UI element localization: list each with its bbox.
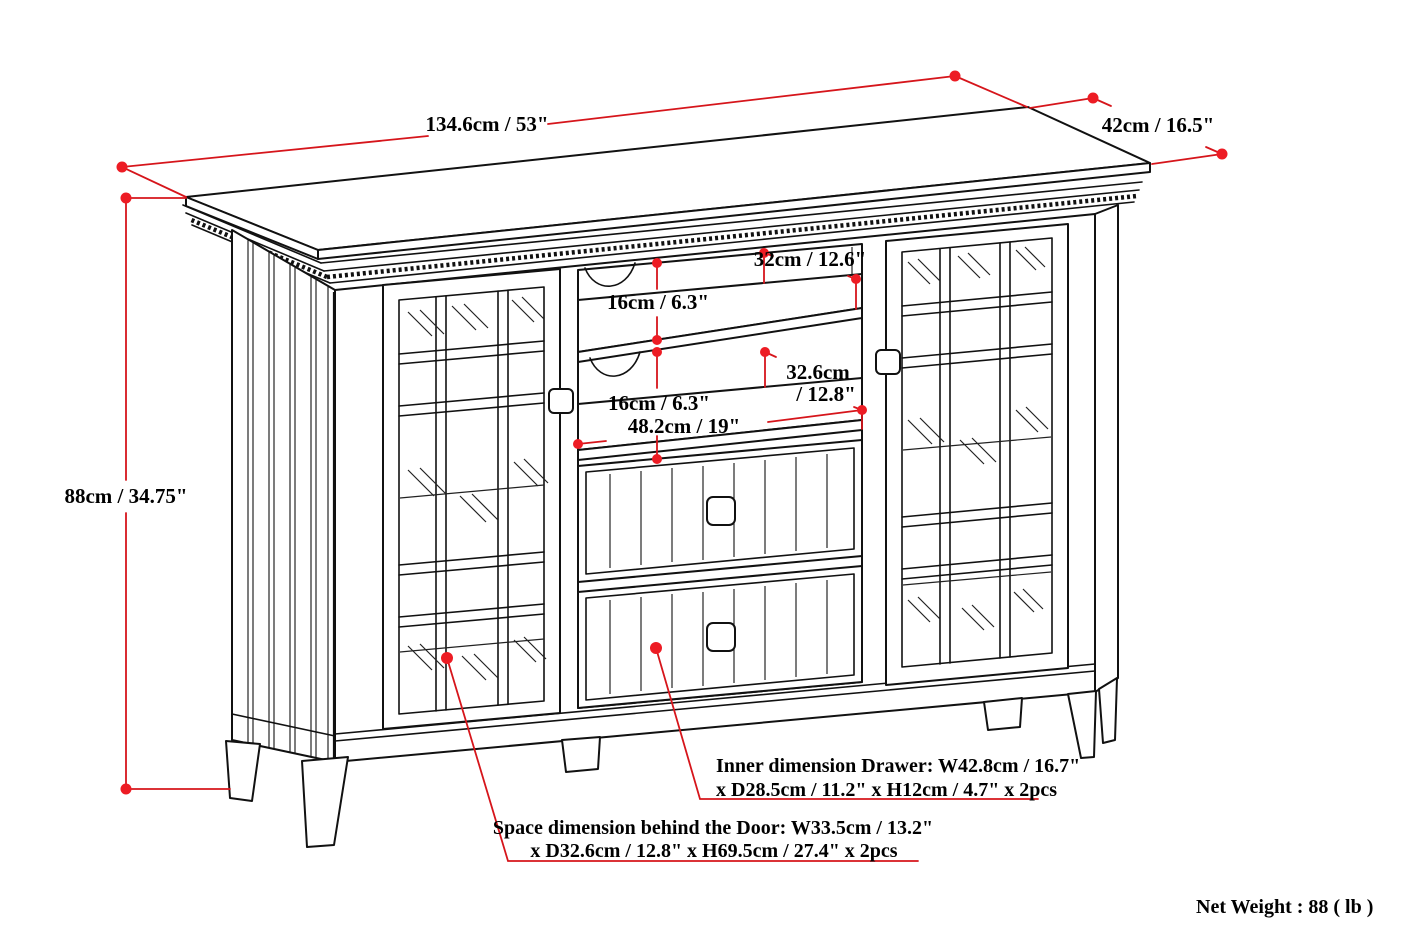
back-right-leg — [1099, 678, 1117, 743]
center-right-foot — [984, 698, 1022, 730]
drawer-upper[interactable] — [578, 440, 862, 582]
back-left-leg — [226, 741, 260, 801]
lower-drawer-knob[interactable] — [707, 623, 735, 651]
right-door — [876, 224, 1068, 685]
front-right-leg — [1068, 691, 1096, 758]
net-weight-label: Net Weight : 88 ( lb ) — [1196, 896, 1373, 918]
dim-lower-shelf-depth-in-label: / 12.8" — [795, 382, 856, 406]
cabinet-drawing: 134.6cm / 53" 42cm / 16.5" 88cm / 34.75"… — [0, 0, 1402, 951]
dim-width-label: 134.6cm / 53" — [425, 112, 548, 136]
front-left-leg — [302, 757, 348, 847]
left-side-panel — [232, 230, 335, 762]
center-left-foot — [562, 737, 600, 772]
furniture-dimension-diagram: 134.6cm / 53" 42cm / 16.5" 88cm / 34.75"… — [0, 0, 1402, 951]
dim-shelf-height-upper-label: 16cm / 6.3" — [607, 290, 709, 314]
dim-height-label: 88cm / 34.75" — [64, 484, 187, 508]
left-door-knob[interactable] — [549, 389, 573, 413]
dim-shelf-depth-label: 32cm / 12.6" — [754, 247, 867, 271]
dim-lower-shelf-depth-cm-label: 32.6cm — [786, 360, 850, 384]
dim-shelf-height-lower-label: 16cm / 6.3" — [608, 391, 710, 415]
dim-depth-label: 42cm / 16.5" — [1102, 113, 1215, 137]
right-side-sliver — [1095, 205, 1118, 692]
drawer-note-line2: x D28.5cm / 11.2" x H12cm / 4.7" x 2pcs — [716, 779, 1057, 801]
right-door-knob[interactable] — [876, 350, 900, 374]
left-door — [383, 269, 573, 729]
dim-center-width-label: 48.2cm / 19" — [628, 414, 741, 438]
note-labels: Inner dimension Drawer: W42.8cm / 16.7" … — [493, 755, 1374, 918]
door-note-line1: Space dimension behind the Door: W33.5cm… — [493, 817, 933, 839]
upper-drawer-knob[interactable] — [707, 497, 735, 525]
door-note-line2: x D32.6cm / 12.8" x H69.5cm / 27.4" x 2p… — [530, 840, 897, 862]
drawer-note-line1: Inner dimension Drawer: W42.8cm / 16.7" — [716, 755, 1080, 777]
drawer-lower[interactable] — [578, 566, 862, 708]
